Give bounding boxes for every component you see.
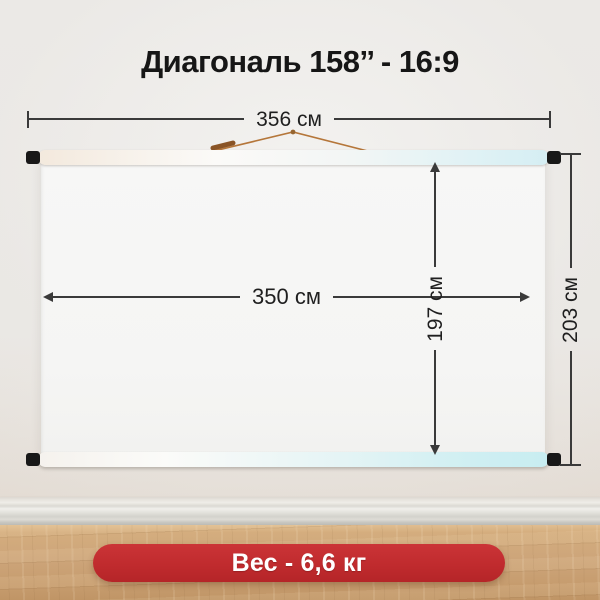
dimension-line	[434, 350, 436, 445]
dimension-line	[434, 172, 436, 267]
weight-badge: Вес - 6,6 кг	[93, 544, 505, 582]
arrow-right-icon	[520, 292, 530, 302]
wall-baseboard	[0, 497, 600, 525]
dimension-line	[53, 296, 240, 298]
page-title: Диагональ 158’’ - 16:9	[0, 44, 600, 80]
dimension-tick-bottom	[560, 464, 581, 466]
dimension-total-height-label: 203 см	[560, 268, 581, 352]
top-bar-endcap-left	[26, 151, 40, 164]
top-bar-endcap-right	[547, 151, 561, 164]
product-infographic: Диагональ 158’’ - 16:9 356 см 350 см 19	[0, 0, 600, 600]
bottom-bar-endcap-right	[547, 453, 561, 466]
arrow-up-icon	[430, 162, 440, 172]
arrow-left-icon	[43, 292, 53, 302]
dimension-screen-width: 350 см	[43, 288, 530, 306]
dimension-total-height: 203 см	[560, 153, 581, 466]
dimension-line	[334, 118, 549, 120]
screen-top-bar	[38, 150, 549, 165]
dimension-screen-width-label: 350 см	[240, 286, 333, 308]
dimension-line	[29, 118, 244, 120]
bottom-bar-endcap-left	[26, 453, 40, 466]
dimension-screen-height: 197 см	[425, 162, 445, 455]
dimension-line	[570, 351, 572, 464]
weight-badge-label: Вес - 6,6 кг	[232, 549, 367, 578]
screen-bottom-bar	[38, 452, 549, 467]
arrow-down-icon	[430, 445, 440, 455]
dimension-screen-height-label: 197 см	[425, 267, 446, 351]
dimension-tick-right	[549, 111, 551, 128]
dimension-line	[570, 155, 572, 268]
